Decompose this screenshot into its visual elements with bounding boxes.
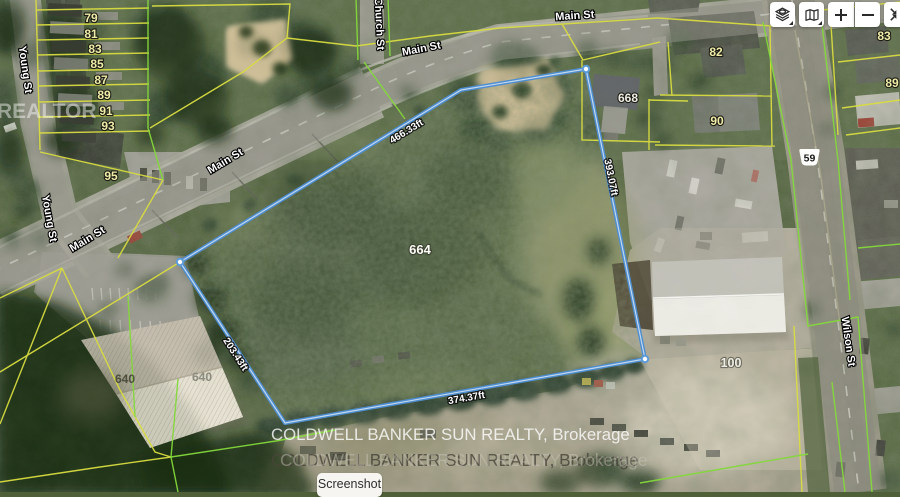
svg-text:90: 90 — [710, 114, 724, 128]
svg-text:79: 79 — [84, 11, 98, 25]
svg-text:59: 59 — [804, 153, 816, 165]
svg-text:COLDWELL BANKER SUN REALTY, Br: COLDWELL BANKER SUN REALTY, Brokerage — [280, 450, 647, 470]
svg-text:83: 83 — [88, 42, 102, 56]
svg-text:640: 640 — [115, 372, 135, 386]
svg-text:REALTOR: REALTOR — [0, 100, 97, 123]
svg-text:664: 664 — [409, 242, 431, 257]
svg-text:82: 82 — [709, 45, 723, 59]
svg-text:89: 89 — [97, 88, 111, 102]
svg-text:668: 668 — [618, 91, 638, 105]
svg-text:85: 85 — [90, 57, 104, 71]
svg-text:89: 89 — [885, 76, 899, 90]
svg-text:87: 87 — [94, 73, 108, 87]
svg-text:95: 95 — [104, 169, 118, 183]
svg-text:81: 81 — [84, 27, 98, 41]
svg-text:83: 83 — [877, 29, 891, 43]
svg-text:COLDWELL BANKER SUN REALTY, Br: COLDWELL BANKER SUN REALTY, Brokerage — [271, 425, 630, 444]
svg-text:100: 100 — [721, 356, 742, 370]
svg-text:91: 91 — [99, 104, 113, 118]
svg-text:640: 640 — [192, 370, 212, 384]
svg-text:93: 93 — [101, 119, 115, 133]
